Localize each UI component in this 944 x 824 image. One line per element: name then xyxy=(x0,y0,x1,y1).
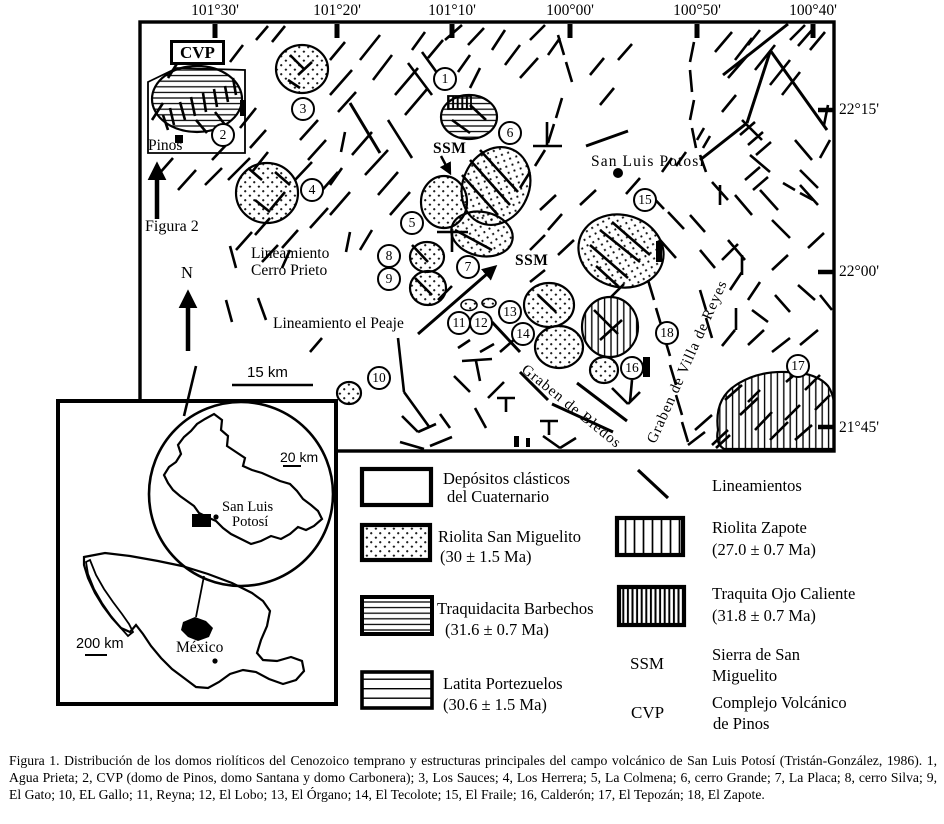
inset-city-line1: San Luis xyxy=(222,499,273,515)
dome-marker-14: 14 xyxy=(511,322,535,346)
swatch-barbechos xyxy=(362,597,432,634)
legend-ssm-abbr: SSM xyxy=(630,654,664,674)
legend-ssm-line2: Miguelito xyxy=(712,666,777,686)
dome-marker-18: 18 xyxy=(655,321,679,345)
dome-small-16b xyxy=(590,357,618,383)
legend-cvp-line2: de Pinos xyxy=(713,714,769,734)
dome-los-sauces xyxy=(276,45,328,93)
inset-country-label: México xyxy=(176,639,223,656)
dome-el-tecolote xyxy=(535,326,583,368)
lat-label-2: 21°45' xyxy=(839,419,879,437)
legend-riolita-sm-line2: (30 ± 1.5 Ma) xyxy=(440,547,532,567)
dome-reyna xyxy=(461,300,477,311)
north-label: N xyxy=(181,264,193,282)
figura2-label: Figura 2 xyxy=(145,218,199,236)
legend-zapote-line1: Riolita Zapote xyxy=(712,518,807,538)
inset-scale-lower-label: 200 km xyxy=(76,636,124,652)
dome-marker-3: 3 xyxy=(291,97,315,121)
swatch-riolita-sm xyxy=(362,525,430,560)
lineamiento-cp-line2: Cerro Prieto xyxy=(251,262,329,279)
ssm-arrow xyxy=(441,156,450,173)
legend-riolita-sm-line1: Riolita San Miguelito xyxy=(438,527,581,547)
dome-marker-15: 15 xyxy=(633,188,657,212)
dome-el-lobo xyxy=(482,299,496,308)
lon-label-2: 101°10' xyxy=(428,2,476,20)
legend-portezuelos-line2: (30.6 ± 1.5 Ma) xyxy=(443,695,547,715)
legend-depositos-line2: del Cuaternario xyxy=(447,487,549,507)
dome-el-gallo xyxy=(337,382,361,404)
dome-marker-17: 17 xyxy=(786,354,810,378)
lon-label-1: 101°20' xyxy=(313,2,361,20)
dome-el-gato xyxy=(410,271,446,305)
map-scale-label: 15 km xyxy=(247,365,288,382)
dome-marker-12: 12 xyxy=(469,311,493,335)
inset-city-line2: Potosí xyxy=(232,514,268,530)
lon-label-3: 100°00' xyxy=(546,2,594,20)
legend-zapote-line2: (27.0 ± 0.7 Ma) xyxy=(712,540,816,560)
lon-label-4: 100°50' xyxy=(673,2,721,20)
dome-agua-prieta-cap xyxy=(448,96,471,109)
figure-1: 101°30' 101°20' 101°10' 100°00' 100°50' … xyxy=(0,0,944,824)
legend-lineamientos-label: Lineamientos xyxy=(712,476,802,496)
dome-marker-13: 13 xyxy=(498,300,522,324)
dome-marker-1: 1 xyxy=(433,67,457,91)
swatch-depositos xyxy=(362,469,431,505)
lineamiento-cerro-prieto-label: Lineamiento Cerro Prieto xyxy=(251,245,329,280)
dome-marker-16: 16 xyxy=(620,356,644,380)
lineamiento-cp-line1: Lineamiento xyxy=(251,245,329,262)
cvp-box-label: CVP xyxy=(170,40,225,65)
dome-los-herrera xyxy=(236,163,298,223)
dome-marker-5: 5 xyxy=(400,211,424,235)
longitude-ticks xyxy=(215,24,813,38)
figure-caption: Figura 1. Distribución de los domos riol… xyxy=(9,752,937,804)
legend-depositos-line1: Depósitos clásticos xyxy=(443,469,570,489)
legend-cvp-line1: Complejo Volcánico xyxy=(712,693,847,713)
legend-ojo-caliente-line2: (31.8 ± 0.7 Ma) xyxy=(712,606,816,626)
legend-barbechos-line1: Traquidacita Barbechos xyxy=(437,599,594,619)
inset-mexico-city-dot xyxy=(212,658,217,663)
san-luis-potosi-label: San Luis Potosi xyxy=(591,153,705,170)
swatch-ojo-caliente xyxy=(619,587,684,625)
dome-marker-7: 7 xyxy=(456,255,480,279)
dome-marker-8: 8 xyxy=(377,244,401,268)
lon-label-0: 101°30' xyxy=(191,2,239,20)
inset-study-area xyxy=(192,514,211,527)
dome-el-tepozan xyxy=(717,372,835,449)
lat-label-0: 22°15' xyxy=(839,101,879,119)
dome-marker-10: 10 xyxy=(367,366,391,390)
swatch-lineamiento xyxy=(638,470,668,498)
legend-ssm-line1: Sierra de San xyxy=(712,645,800,665)
legend-portezuelos-line1: Latita Portezuelos xyxy=(443,674,563,694)
legend-barbechos-line2: (31.6 ± 0.7 Ma) xyxy=(445,620,549,640)
dome-marker-4: 4 xyxy=(300,178,324,202)
dome-marker-2: 2 xyxy=(211,123,235,147)
lineamiento-peaje-label: Lineamiento el Peaje xyxy=(273,315,404,332)
dome-marker-11: 11 xyxy=(447,311,471,335)
dome-marker-9: 9 xyxy=(377,267,401,291)
legend-ojo-caliente-line1: Traquita Ojo Caliente xyxy=(712,584,855,604)
lat-label-1: 22°00' xyxy=(839,263,879,281)
legend-cvp-abbr: CVP xyxy=(631,703,664,723)
ssm-label-2: SSM xyxy=(515,252,548,269)
lon-label-5: 100°40' xyxy=(789,2,837,20)
swatch-zapote xyxy=(617,518,683,555)
ssm-label-1: SSM xyxy=(433,140,466,157)
inset-scale-upper-label: 20 km xyxy=(280,450,318,466)
pinos-label: Pinos xyxy=(148,137,182,154)
dome-marker-6: 6 xyxy=(498,121,522,145)
swatch-portezuelos xyxy=(362,672,432,708)
inset-city-dot xyxy=(213,514,218,519)
